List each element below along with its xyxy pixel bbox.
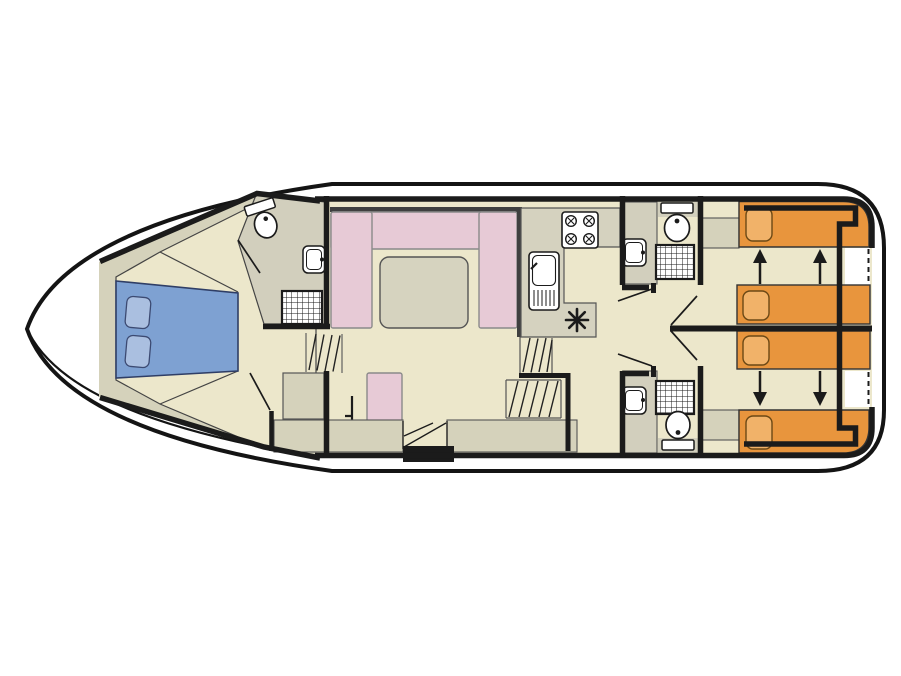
pillow — [743, 291, 769, 320]
pillow — [125, 335, 152, 368]
bathroom-bottom — [622, 371, 700, 455]
galley-sink-icon — [529, 252, 559, 310]
washbasin-icon — [622, 387, 646, 414]
aft-counter — [447, 420, 577, 452]
stern-open-gap-bottom — [845, 371, 870, 407]
pillow — [746, 208, 772, 241]
sofa-left-arm — [331, 212, 372, 328]
wardrobe-top — [702, 218, 739, 248]
port-counter — [274, 420, 403, 452]
toilet-icon — [661, 203, 693, 242]
washbasin-icon — [303, 246, 325, 273]
washbasin-icon — [622, 239, 646, 266]
boat-floor-plan — [0, 0, 901, 676]
pillow — [125, 296, 152, 329]
saloon-window-sill — [330, 207, 517, 212]
floor-plan-canvas — [0, 0, 901, 676]
pillow — [743, 336, 769, 365]
shower-icon — [282, 291, 322, 324]
sofa-right-arm — [479, 212, 517, 328]
hob-icon — [562, 212, 598, 248]
shower-icon — [656, 381, 694, 414]
wardrobe-bottom — [702, 410, 739, 440]
shower-icon — [656, 245, 694, 279]
stern-open-gap-top — [845, 248, 870, 285]
storage-cabinet — [283, 373, 324, 419]
cool-box-star-icon — [566, 309, 588, 331]
dinette-table — [380, 257, 468, 328]
